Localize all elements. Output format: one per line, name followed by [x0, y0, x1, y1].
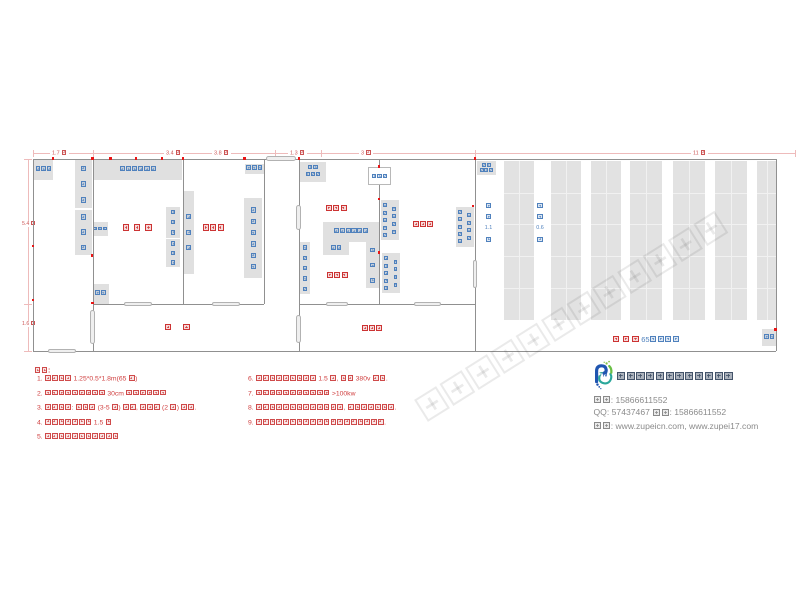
svg-text:N: N [603, 373, 608, 379]
